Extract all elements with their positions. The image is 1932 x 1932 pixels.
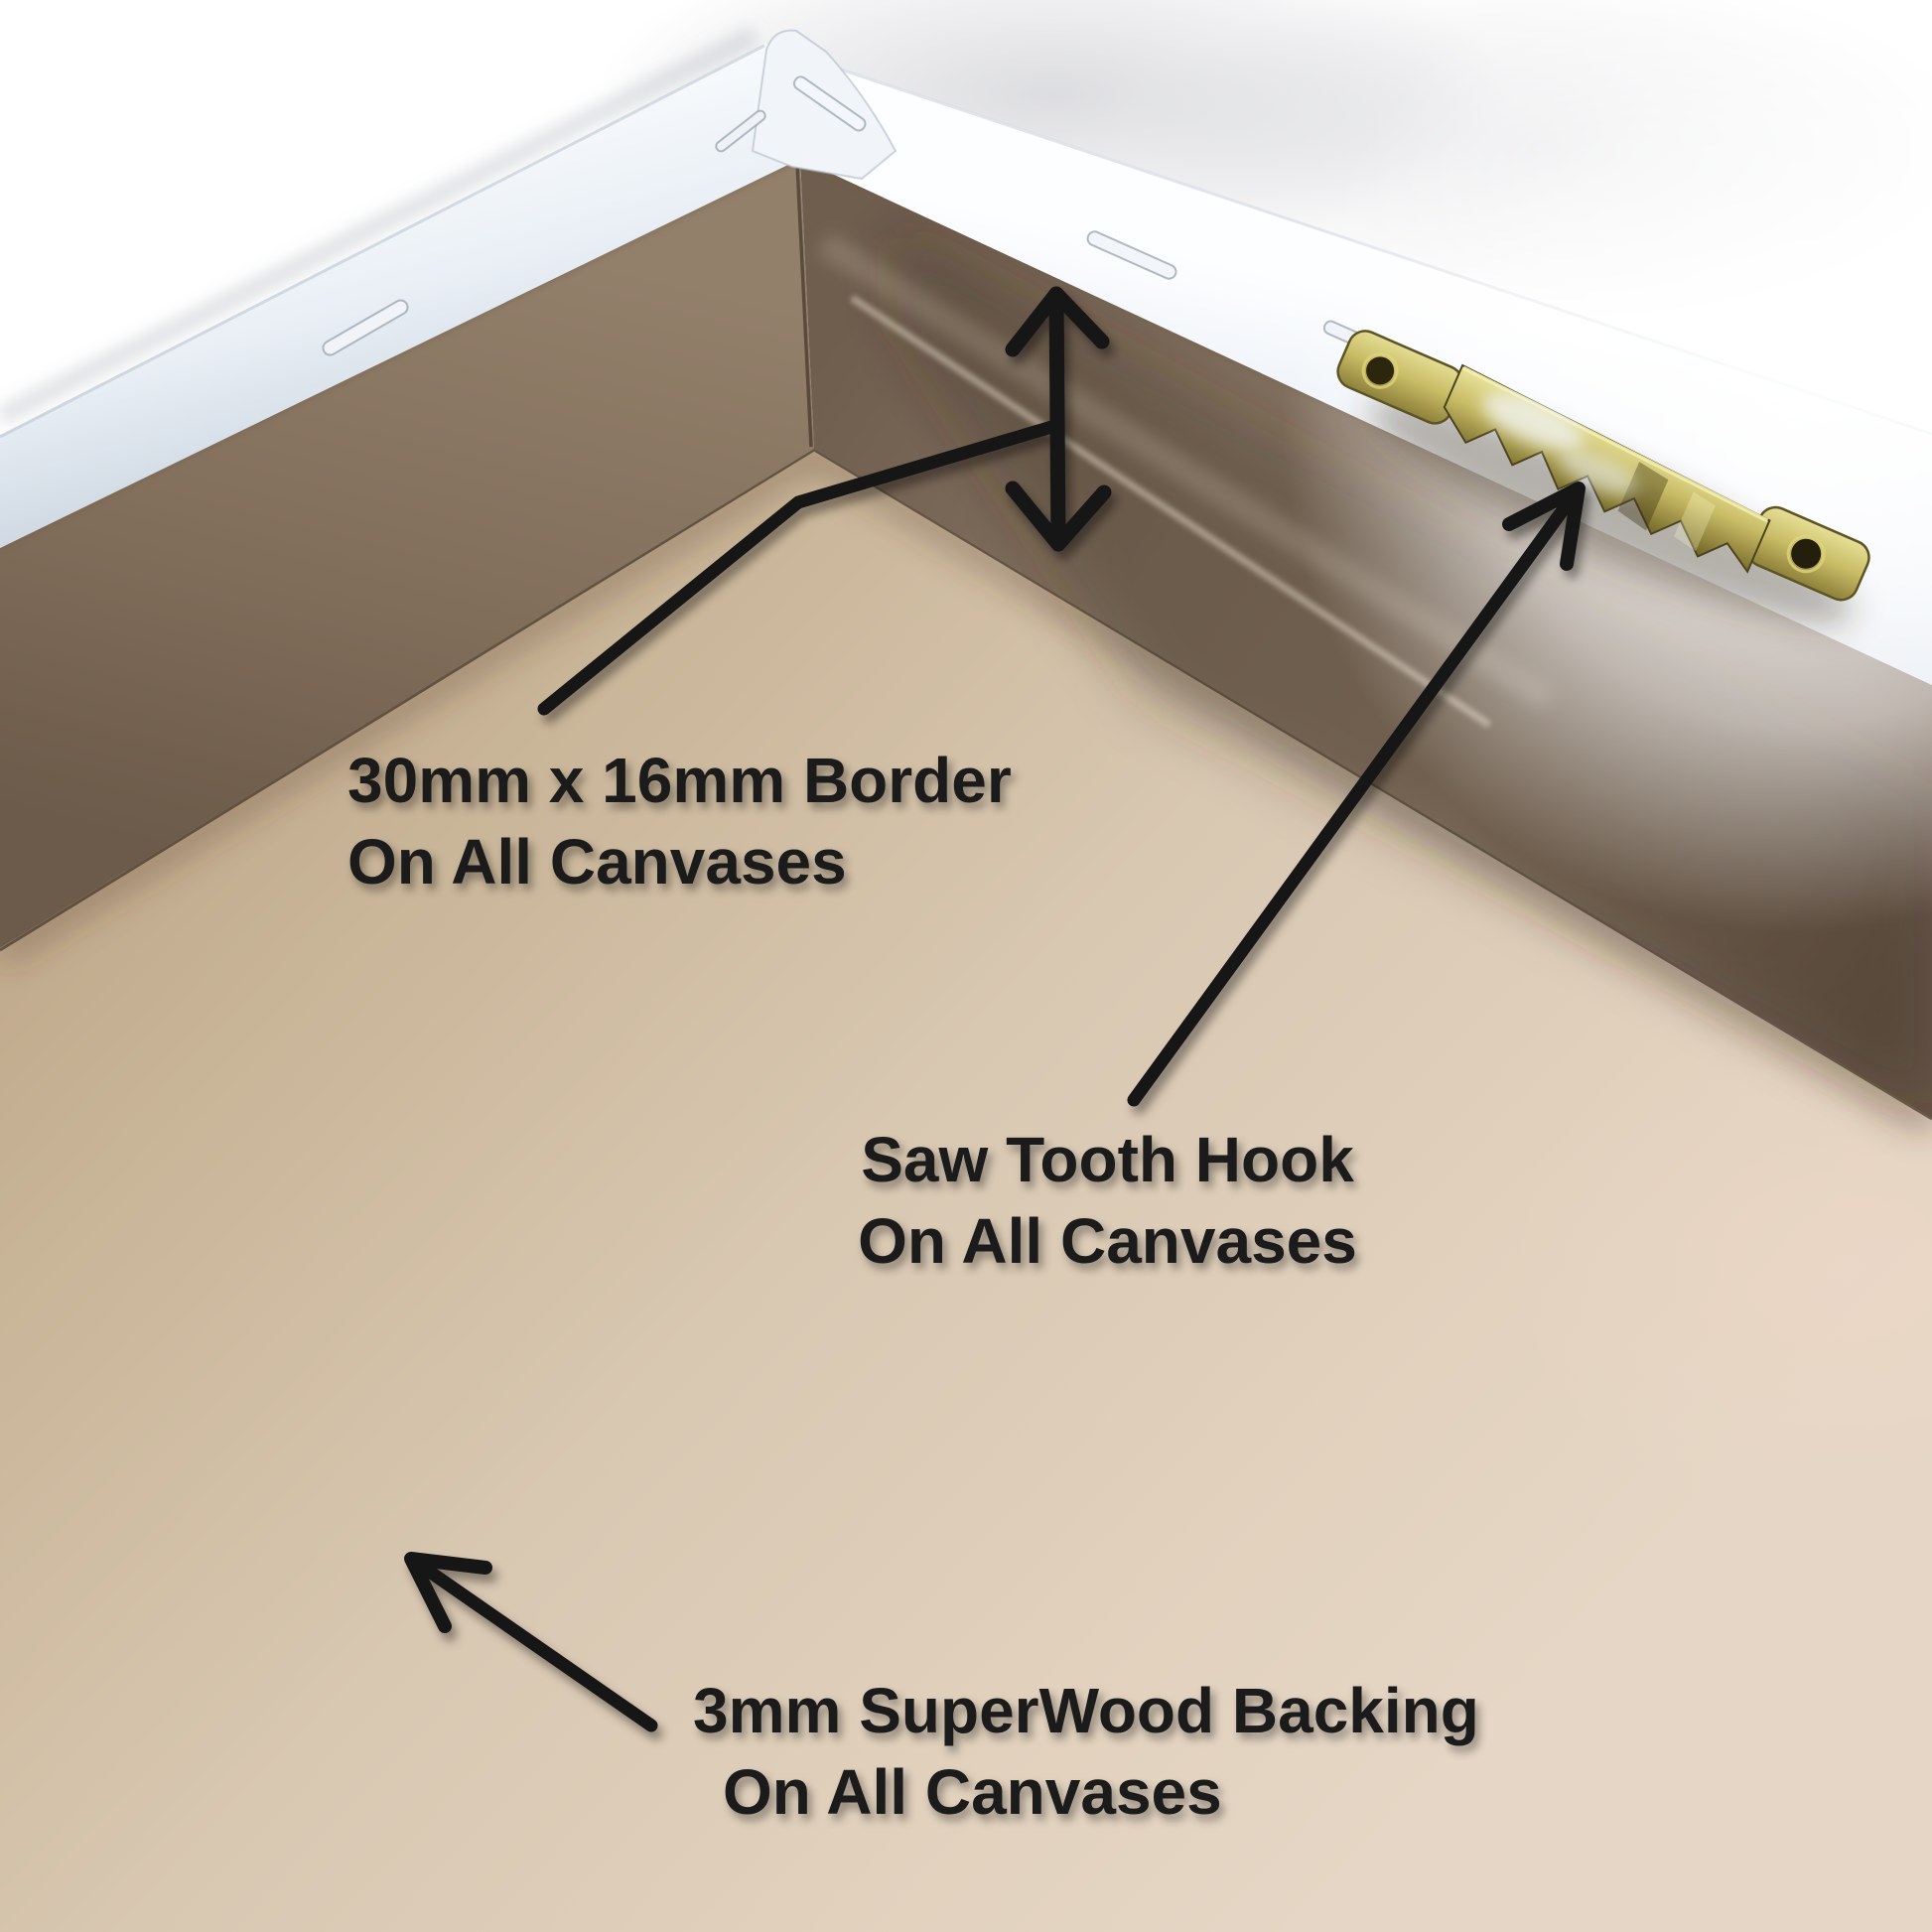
backing-label: 3mm SuperWood Backing On All Canvases [693,1670,1479,1833]
border-label-line1: 30mm x 16mm Border [347,740,1012,821]
sawtooth-hook-label-line2: On All Canvases [822,1200,1393,1282]
annotated-canvas-back-photo: 30mm x 16mm Border On All Canvases Saw T… [0,0,1932,1932]
sawtooth-hook-label: Saw Tooth Hook On All Canvases [822,1119,1393,1282]
sawtooth-hook-label-line1: Saw Tooth Hook [822,1119,1393,1200]
backing-label-line1: 3mm SuperWood Backing [693,1670,1479,1751]
photo-scene [0,0,1932,1932]
backing-label-line2: On All Canvases [723,1751,1479,1833]
border-label-line2: On All Canvases [347,821,1012,902]
border-label: 30mm x 16mm Border On All Canvases [347,740,1012,902]
